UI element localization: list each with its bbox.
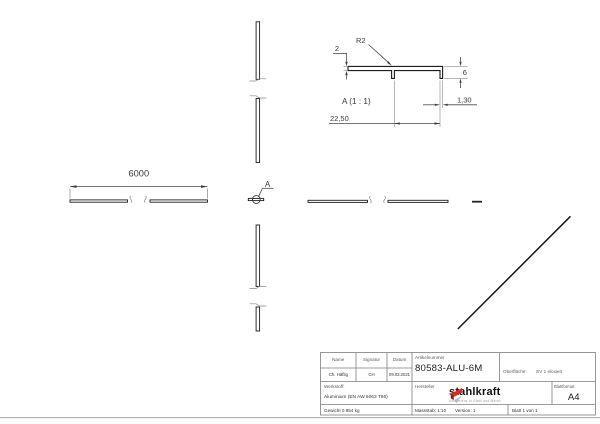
dimension-radius: R2 [356,36,392,66]
front-view: 6000 A [70,169,274,204]
titleblock-name-value: Ch. Häflig [321,372,357,377]
gewicht-value: Gewicht 0.954 kg [324,408,360,413]
break-line [384,196,386,203]
titleblock-datum-label: Datum [387,357,412,362]
cad-drawing-sheet: 6000 A [0,0,600,424]
stahlkraft-logo: stahlkraft Kompetenz in Stahl und Metall [449,387,501,403]
side-view [308,196,482,203]
massstab-value: Massstab: 1:10 [415,408,446,413]
thickness-dimension-text: 2 [335,44,339,53]
dimension-wall: 1,30 [423,81,477,128]
titleblock-datum-value: 09.03.2021 [387,372,412,377]
break-line [144,196,146,203]
blatt-value: Blatt 1 von 1 [512,408,538,413]
bottom-view [250,225,267,331]
blattformat-value: A4 [552,392,596,403]
oberflaeche-value: EV 1 eloxiert [536,369,562,374]
titleblock-name-label: Name [321,357,357,362]
oberflaeche-label: Oberfläche: [503,369,527,374]
break-line [130,196,132,203]
detail-callout-a: A [248,180,273,204]
break-line [369,196,371,203]
werkstoff-label: Werkstoff: [324,384,345,389]
detail-view-a: 2 R2 6 1,30 [329,36,477,127]
dimension-height: 6 [444,57,468,88]
stahlkraft-logo-icon [449,387,464,404]
top-view [250,22,267,163]
titleblock-signatur-value: CH [356,372,387,377]
radius-dimension-text: R2 [356,36,366,45]
break-line [250,304,267,306]
hersteller-label: Hersteller [415,384,435,389]
width-dimension-text: 22,50 [330,114,349,123]
height-dimension-text: 6 [463,68,467,77]
isometric-view [458,216,571,329]
blattformat-label: Blattformat [554,384,574,389]
dimension-thickness: 2 [333,44,348,80]
end-view [472,201,482,203]
dimension-6000: 6000 [70,169,208,199]
artikelnummer-value: 80583-ALU-6M [415,363,482,374]
detail-view-title: A (1 : 1) [342,97,371,106]
titleblock-signatur-label: Signatur [356,357,387,362]
wall-dimension-text: 1,30 [457,96,472,105]
version-value: Version: 1 [455,408,475,413]
artikelnummer-label: Artikelnummer [415,355,445,360]
detail-callout-label: A [265,180,271,189]
werkstoff-value: Aluminium (EN AW 6063 T66) [324,395,388,400]
profile-outline [348,66,443,78]
length-dimension-text: 6000 [128,169,149,179]
break-line [250,96,267,98]
